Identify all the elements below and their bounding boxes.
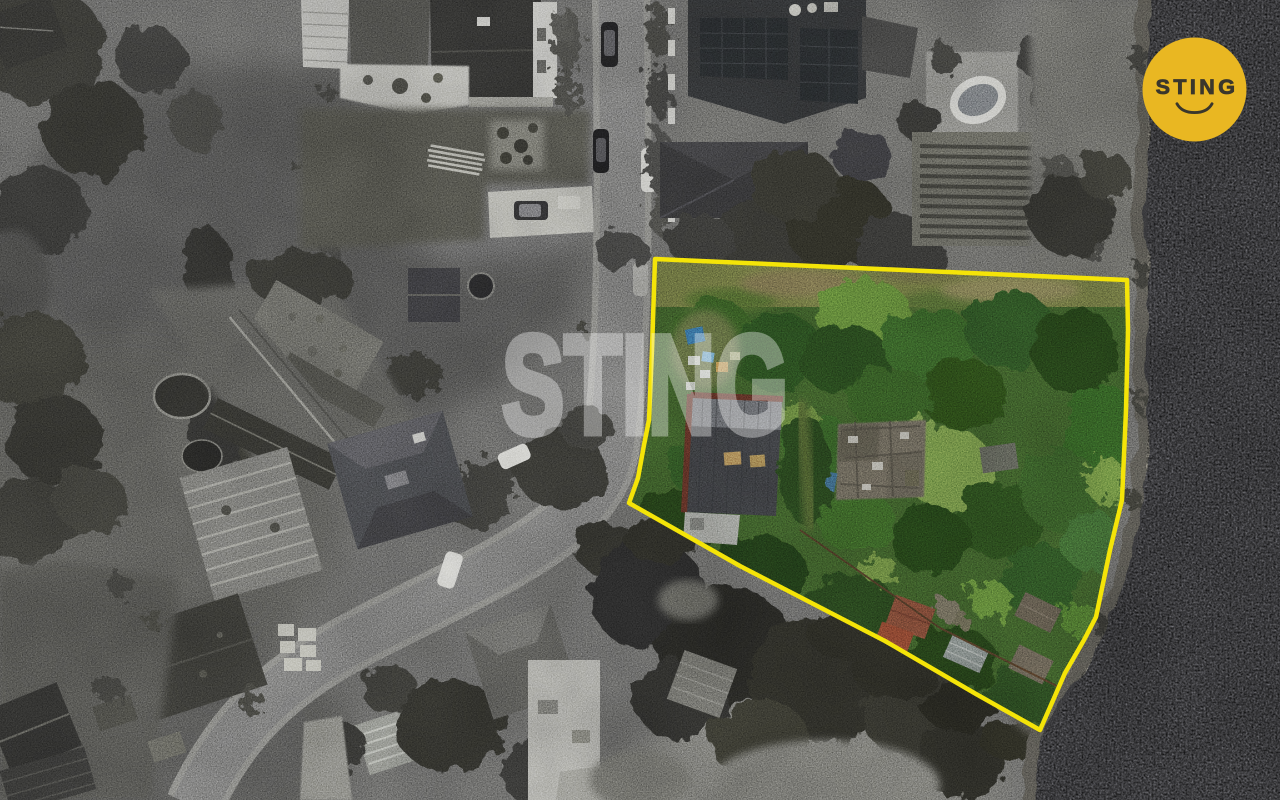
svg-text:STING: STING — [1156, 75, 1239, 99]
svg-text:STING: STING — [502, 307, 789, 463]
